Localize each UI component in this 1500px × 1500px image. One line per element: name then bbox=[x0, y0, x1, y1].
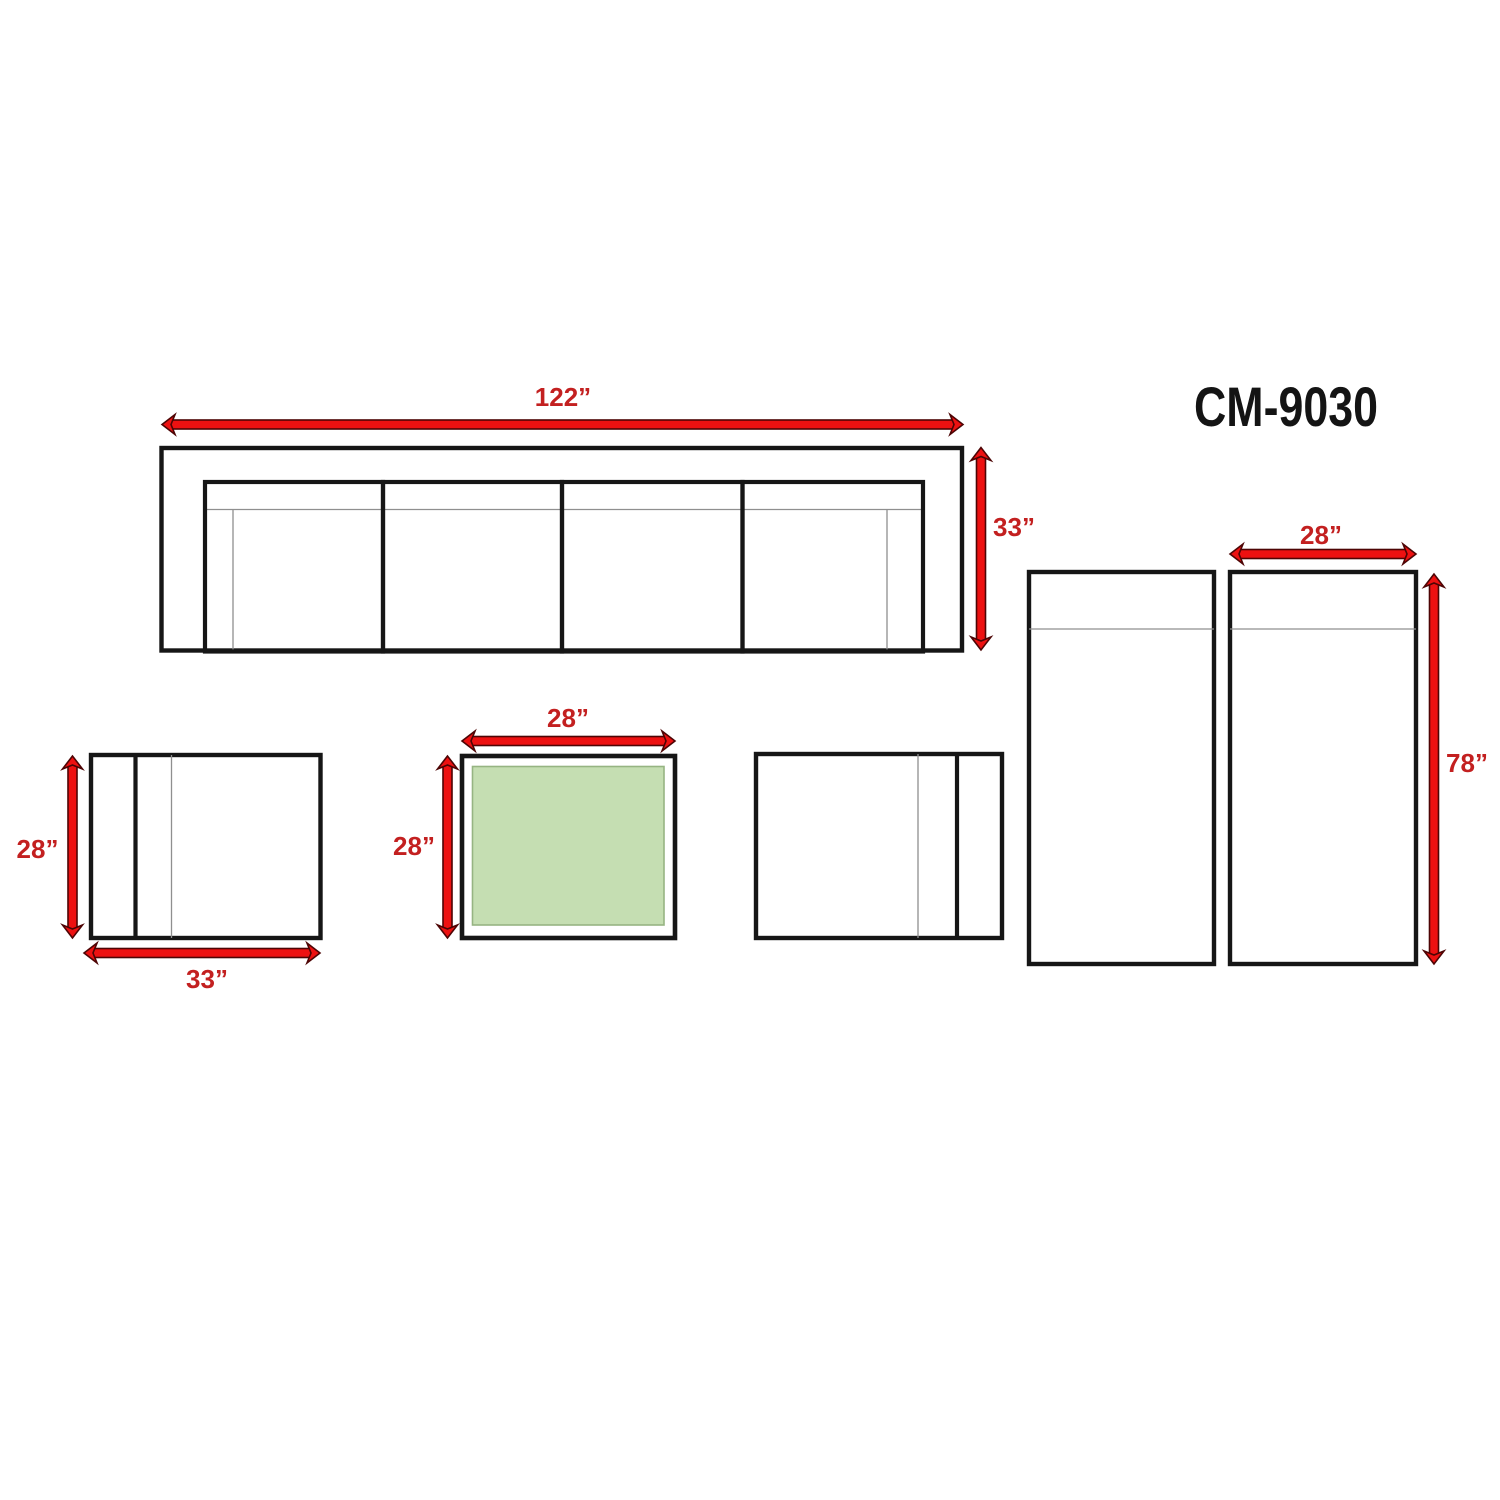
svg-text:28”: 28” bbox=[393, 831, 435, 861]
svg-text:78”: 78” bbox=[1446, 748, 1488, 778]
svg-text:28”: 28” bbox=[17, 834, 59, 864]
svg-text:33”: 33” bbox=[186, 964, 228, 994]
svg-text:28”: 28” bbox=[1300, 520, 1342, 550]
svg-text:33”: 33” bbox=[993, 512, 1035, 542]
svg-text:28”: 28” bbox=[547, 703, 589, 733]
svg-text:122”: 122” bbox=[535, 382, 591, 412]
svg-text:CM-9030: CM-9030 bbox=[1194, 375, 1378, 438]
